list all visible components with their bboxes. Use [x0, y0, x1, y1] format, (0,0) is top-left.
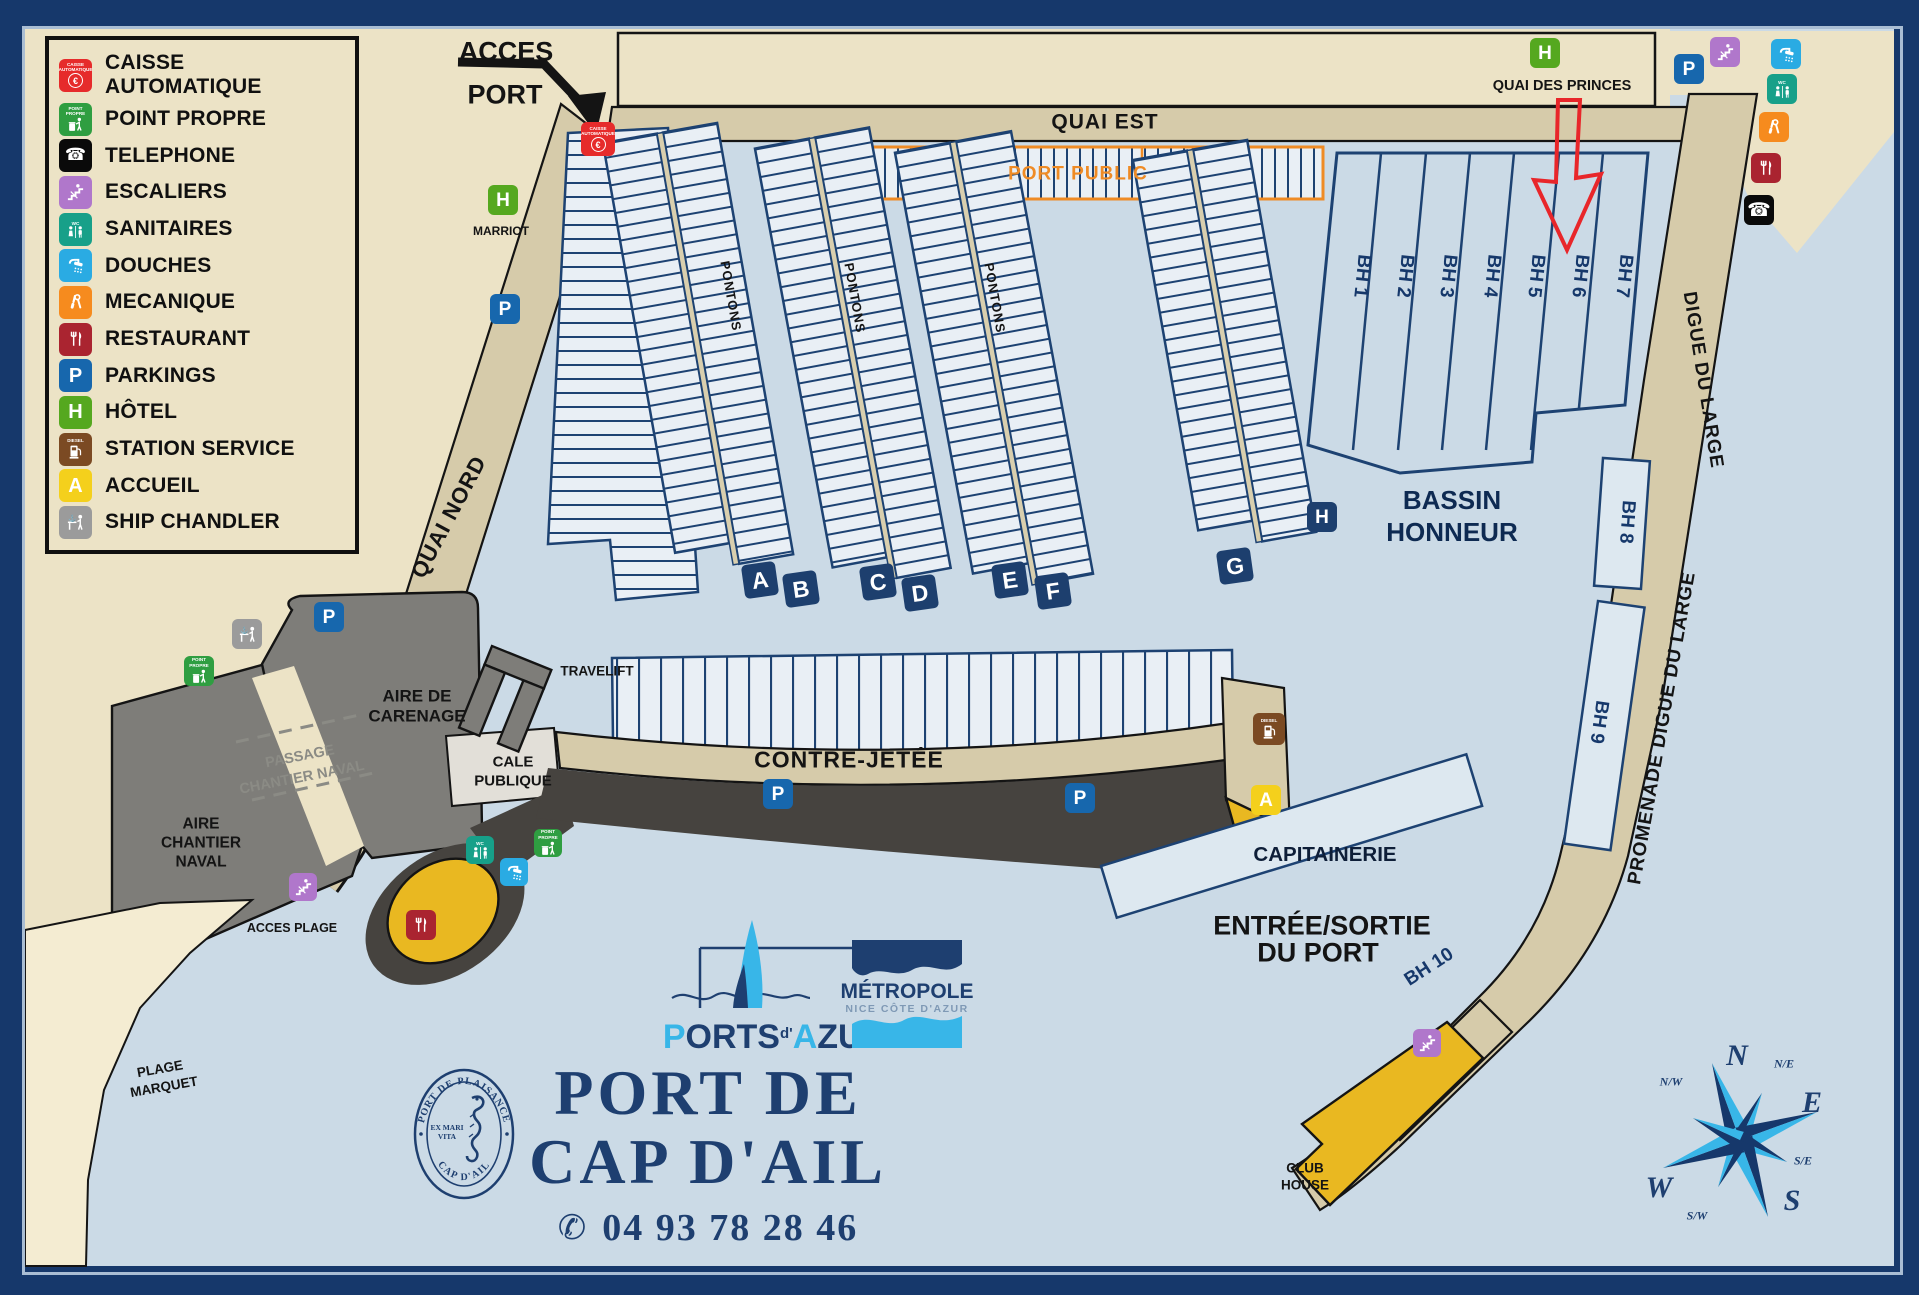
- map-label-club_2: HOUSE: [1281, 1178, 1329, 1192]
- restaurant-icon: [406, 910, 436, 940]
- pontoon-label-C: C: [859, 563, 897, 601]
- compass-label-nw: N/W: [1660, 1075, 1683, 1090]
- escaliers-icon: [1413, 1029, 1441, 1057]
- parking-icon: P: [763, 779, 793, 809]
- compass-label-se: S/E: [1794, 1154, 1812, 1169]
- map-label-quai_est: QUAI EST: [1051, 112, 1158, 133]
- map-label-carenage_1: AIRE DE: [383, 688, 452, 705]
- sanitaires-icon: WC: [466, 836, 494, 864]
- accueil-icon: A: [59, 469, 92, 502]
- map-label-chantier_3: NAVAL: [175, 854, 226, 870]
- legend-label: DOUCHES: [105, 254, 211, 278]
- map-label-cale_1: CALE: [493, 755, 534, 770]
- legend-item-caisse: CAISSE AUTOMATIQUE€CAISSE AUTOMATIQUE: [59, 51, 345, 99]
- hotel-icon: H: [1307, 502, 1337, 532]
- map-label-chantier_2: CHANTIER: [161, 835, 241, 851]
- legend-item-escaliers: ESCALIERS: [59, 176, 345, 209]
- legend-label: STATION SERVICE: [105, 437, 295, 461]
- station-icon: DIESEL: [59, 433, 92, 466]
- parking-icon: P: [490, 294, 520, 324]
- legend-label: TELEPHONE: [105, 144, 235, 168]
- legend-label: ACCUEIL: [105, 474, 200, 498]
- escaliers-icon: [59, 176, 92, 209]
- legend-item-shipchandler: ⚓SHIP CHANDLER: [59, 506, 345, 539]
- hotel-icon: H: [1530, 38, 1560, 68]
- pontoon-label-D: D: [901, 574, 939, 612]
- svg-text:⚓: ⚓: [68, 513, 76, 522]
- legend-label: ESCALIERS: [105, 180, 227, 204]
- telephone-icon: ☎: [59, 139, 92, 172]
- legend-label: MECANIQUE: [105, 290, 235, 314]
- map-label-marriot: MARRIOT: [473, 225, 529, 237]
- douches-icon: [1771, 39, 1801, 69]
- legend-item-douches: DOUCHES: [59, 249, 345, 282]
- legend-item-accueil: AACCUEIL: [59, 469, 345, 502]
- shipchandler-icon: ⚓: [59, 506, 92, 539]
- map-label-carenage_2: CARENAGE: [368, 708, 465, 725]
- pointpropre-icon: POINT PROPRE: [184, 656, 214, 686]
- compass-label-ne: N/E: [1774, 1057, 1794, 1072]
- pontoon-label-E: E: [991, 561, 1029, 599]
- map-label-club_1: CLUB: [1286, 1161, 1324, 1175]
- map-label-quai_des_princes: QUAI DES PRINCES: [1493, 79, 1632, 94]
- map-label-acces_1: ACCES: [459, 39, 554, 66]
- escaliers-icon: [1710, 37, 1740, 67]
- bh-label-4: BH 4: [1480, 253, 1503, 298]
- map-label-travelift: TRAVELIFT: [560, 664, 633, 678]
- legend-item-sanitaires: WCSANITAIRES: [59, 213, 345, 246]
- parking-icon: P: [1065, 783, 1095, 813]
- page-title-line2: CAP D'AIL: [408, 1127, 1008, 1196]
- caisse-icon: CAISSE AUTOMATIQUE€: [581, 122, 615, 156]
- map-label-entree_1: ENTRÉE/SORTIE: [1213, 913, 1431, 940]
- parking-icon: P: [314, 602, 344, 632]
- legend-item-restaurant: RESTAURANT: [59, 323, 345, 356]
- legend-label: SANITAIRES: [105, 217, 233, 241]
- douches-icon: [500, 858, 528, 886]
- caisse-icon: CAISSE AUTOMATIQUE€: [59, 59, 92, 92]
- legend-label: RESTAURANT: [105, 327, 250, 351]
- restaurant-icon: [1751, 153, 1781, 183]
- hotel-icon: H: [488, 185, 518, 215]
- pointpropre-icon: POINT PROPRE: [59, 103, 92, 136]
- restaurant-icon: [59, 323, 92, 356]
- legend-label: POINT PROPRE: [105, 107, 266, 131]
- bh-label-5: BH 5: [1524, 253, 1547, 298]
- sanitaires-icon: WC: [1767, 74, 1797, 104]
- legend-label: SHIP CHANDLER: [105, 510, 280, 534]
- compass-label-n: N: [1726, 1039, 1748, 1073]
- map-label-bassin_1: BASSIN: [1403, 487, 1501, 513]
- pontoon-label-F: F: [1034, 572, 1072, 610]
- legend-label: CAISSE AUTOMATIQUE: [105, 51, 345, 99]
- legend-item-station: DIESELSTATION SERVICE: [59, 433, 345, 466]
- shipchandler-icon: ⚓: [232, 619, 262, 649]
- pontoon-label-B: B: [782, 570, 820, 608]
- douches-icon: [59, 249, 92, 282]
- legend-item-telephone: ☎TELEPHONE: [59, 139, 345, 172]
- map-label-entree_2: DU PORT: [1257, 940, 1379, 967]
- map-label-acces_2: PORT: [467, 82, 542, 109]
- compass-label-e: E: [1802, 1086, 1822, 1120]
- legend-item-pointpropre: POINT PROPREPOINT PROPRE: [59, 103, 345, 136]
- bh-label-6: BH 6: [1568, 253, 1591, 298]
- bh-label-1: BH 1: [1350, 253, 1373, 298]
- legend-panel: CAISSE AUTOMATIQUE€CAISSE AUTOMATIQUEPOI…: [45, 36, 359, 554]
- phone-row: ✆ 04 93 78 28 46: [408, 1206, 1008, 1250]
- map-label-acces_plage: ACCES PLAGE: [247, 922, 337, 935]
- map-label-capitainerie: CAPITAINERIE: [1253, 845, 1396, 866]
- mecanique-icon: [59, 286, 92, 319]
- map-label-contre_jetee: CONTRE-JETÉE: [754, 749, 944, 772]
- station-icon: DIESEL: [1253, 713, 1285, 745]
- compass-label-sw: S/W: [1687, 1209, 1708, 1224]
- svg-text:⚓: ⚓: [240, 625, 248, 634]
- compass-label-w: W: [1646, 1171, 1673, 1205]
- title-block: PORT DE CAP D'AIL ✆ 04 93 78 28 46: [408, 1058, 1008, 1250]
- legend-label: PARKINGS: [105, 364, 216, 388]
- bh-label-2: BH 2: [1393, 253, 1416, 298]
- phone-icon: ✆: [558, 1208, 589, 1248]
- pontoon-label-G: G: [1216, 547, 1254, 585]
- escaliers-icon: [289, 873, 317, 901]
- hotel-icon: H: [59, 396, 92, 429]
- parking-icon: P: [1674, 54, 1704, 84]
- telephone-icon: ☎: [1744, 195, 1774, 225]
- legend-label: HÔTEL: [105, 400, 177, 424]
- map-label-cale_2: PUBLIQUE: [474, 774, 552, 789]
- bh-label-8: BH 8: [1616, 500, 1638, 545]
- compass-label-s: S: [1784, 1184, 1801, 1218]
- pointpropre-icon: POINT PROPRE: [534, 829, 562, 857]
- bh-label-7: BH 7: [1612, 253, 1635, 298]
- map-label-chantier_1: AIRE: [182, 816, 219, 832]
- sanitaires-icon: WC: [59, 213, 92, 246]
- legend-item-parking: PPARKINGS: [59, 359, 345, 392]
- port-map: PORT DE PLAISANCE CAP D'AIL EX MARI VITA…: [0, 0, 1919, 1295]
- mecanique-icon: [1759, 112, 1789, 142]
- bh-label-3: BH 3: [1436, 253, 1459, 298]
- page-title-line1: PORT DE: [408, 1058, 1008, 1127]
- legend-item-hotel: HHÔTEL: [59, 396, 345, 429]
- accueil-icon: A: [1251, 785, 1281, 815]
- map-label-bassin_2: HONNEUR: [1386, 519, 1517, 545]
- pontoon-label-A: A: [741, 561, 779, 599]
- parking-icon: P: [59, 359, 92, 392]
- phone-number: 04 93 78 28 46: [602, 1206, 858, 1250]
- map-label-port_public: PORT PUBLIC: [1008, 165, 1148, 184]
- legend-item-mecanique: MECANIQUE: [59, 286, 345, 319]
